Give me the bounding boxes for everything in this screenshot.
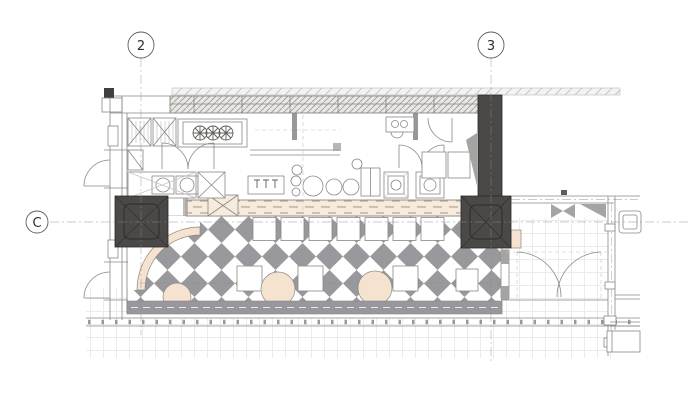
wall-tick bbox=[561, 190, 567, 195]
wall-block bbox=[605, 224, 615, 231]
wall-block bbox=[605, 282, 615, 289]
grid-label-c: C bbox=[32, 216, 41, 231]
bar-stool bbox=[365, 218, 388, 241]
counter-end-wall bbox=[183, 198, 188, 216]
sink bbox=[326, 179, 342, 195]
grid-bubble-3: 3 bbox=[478, 32, 504, 58]
bar-stool bbox=[393, 218, 416, 241]
grid-bubble-2: 2 bbox=[128, 32, 154, 58]
sink bbox=[292, 188, 300, 196]
sink bbox=[303, 176, 323, 196]
bar-stool bbox=[253, 218, 276, 241]
kitchen-cabinet bbox=[422, 152, 446, 178]
bar-stool bbox=[281, 218, 304, 241]
bar-stool bbox=[421, 218, 444, 241]
grid-label-3: 3 bbox=[487, 39, 495, 54]
kitchen-cabinet bbox=[448, 152, 470, 178]
wall-block bbox=[604, 316, 616, 325]
sink bbox=[343, 179, 359, 195]
tile-grid-area bbox=[86, 318, 612, 358]
floor-plan-drawing: 2 3 C bbox=[0, 0, 700, 400]
structural-column bbox=[461, 196, 511, 248]
grid-bubble-c: C bbox=[26, 211, 48, 233]
grid-label-2: 2 bbox=[137, 39, 145, 54]
shear-wall bbox=[478, 95, 502, 196]
vestibule-wall bbox=[501, 250, 509, 300]
burner bbox=[206, 126, 220, 140]
bar-stool bbox=[309, 218, 332, 241]
square-table bbox=[456, 269, 478, 291]
dining-area bbox=[127, 216, 502, 314]
north-facade-wall bbox=[170, 96, 478, 113]
sink bbox=[291, 176, 301, 186]
burner bbox=[219, 126, 233, 140]
glass-washer bbox=[384, 172, 408, 198]
square-table bbox=[393, 266, 418, 291]
keynote-callout bbox=[292, 165, 302, 175]
canopy-edge bbox=[172, 88, 620, 95]
keynote-callout bbox=[352, 159, 362, 169]
wall-block bbox=[108, 126, 118, 146]
bar-stool bbox=[337, 218, 360, 241]
structural-column bbox=[115, 196, 168, 247]
round-table bbox=[358, 271, 392, 305]
burner bbox=[193, 126, 207, 140]
square-table bbox=[298, 266, 323, 291]
bar-stool-row bbox=[253, 218, 444, 241]
beer-tap-unit bbox=[248, 176, 284, 194]
square-table bbox=[237, 266, 262, 291]
counter-cabinet bbox=[361, 168, 380, 196]
counter-return bbox=[511, 230, 521, 248]
floor-plan-sheet: 2 3 C bbox=[0, 0, 700, 400]
wall-stub bbox=[292, 113, 297, 140]
